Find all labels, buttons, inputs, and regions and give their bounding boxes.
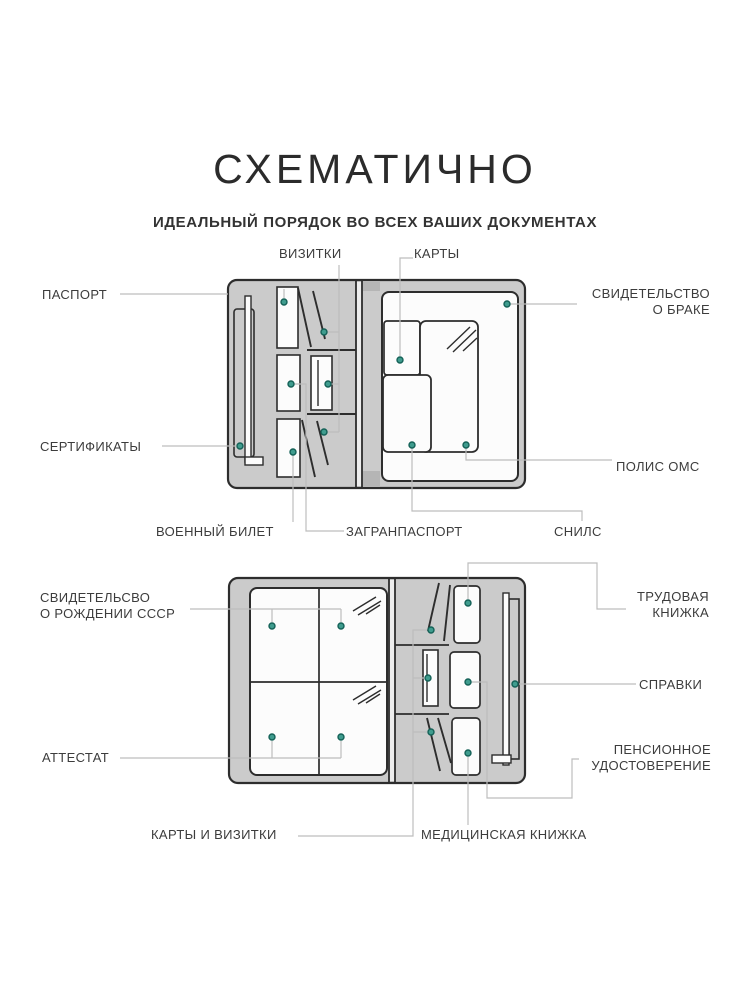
label-oms-policy: ПОЛИС ОМС [616, 459, 700, 475]
marker-certificates [237, 443, 243, 449]
label-birth-line1: СВИДЕТЕЛЬСВО [40, 590, 175, 606]
label-medical-book: МЕДИЦИНСКАЯ КНИЖКА [421, 827, 586, 843]
marker-pension [465, 679, 471, 685]
label-cards: КАРТЫ [414, 246, 460, 262]
marker-business-cards-3 [321, 429, 327, 435]
label-certificates: СЕРТИФИКАТЫ [40, 439, 141, 455]
top-pocket-cards [384, 321, 420, 375]
label-work-book-line2: КНИЖКА [554, 605, 709, 621]
marker-medical-book [465, 750, 471, 756]
label-birth-certificate: СВИДЕТЕЛЬСВО О РОЖДЕНИИ СССР [40, 590, 175, 622]
label-foreign-passport: ЗАГРАНПАСПОРТ [346, 524, 463, 540]
marker-oms-policy [463, 442, 469, 448]
label-pension-line1: ПЕНСИОННОЕ [556, 742, 711, 758]
label-marriage-line2: О БРАКЕ [555, 302, 710, 318]
label-marriage-line1: СВИДЕТЕЛЬСТВО [555, 286, 710, 302]
label-marriage-certificate: СВИДЕТЕЛЬСТВО О БРАКЕ [555, 286, 710, 318]
label-passport: ПАСПОРТ [42, 287, 107, 303]
organizer-diagram [0, 0, 750, 1000]
label-military-id: ВОЕННЫЙ БИЛЕТ [156, 524, 274, 540]
infographic-page: СХЕМАТИЧНО ИДЕАЛЬНЫЙ ПОРЯДОК ВО ВСЕХ ВАШ… [0, 0, 750, 1000]
top-spine-shade-b [363, 471, 380, 486]
marker-business-cards-2 [325, 381, 331, 387]
label-cards-business-cards: КАРТЫ И ВИЗИТКИ [151, 827, 277, 843]
marker-marriage [504, 301, 510, 307]
marker-foreign-passport [288, 381, 294, 387]
top-pocket-snils [383, 375, 431, 452]
marker-snils [409, 442, 415, 448]
organizer-top [228, 280, 525, 488]
marker-birth-cert-2 [338, 623, 344, 629]
top-pen-base [245, 457, 263, 465]
marker-cards-bc-2 [425, 675, 431, 681]
marker-cards-bc-3 [428, 729, 434, 735]
label-spravki: СПРАВКИ [639, 677, 702, 693]
bottom-pocket-medical [452, 718, 480, 775]
marker-attestat-1 [269, 734, 275, 740]
top-slot-passport [277, 287, 298, 348]
label-work-book: ТРУДОВАЯ КНИЖКА [554, 589, 709, 621]
marker-military-id [290, 449, 296, 455]
top-slot-military-id [277, 419, 300, 477]
label-pension-line2: УДОСТОВЕРЕНИЕ [556, 758, 711, 774]
bottom-pen-base [492, 755, 511, 763]
top-pen-strip [245, 296, 251, 462]
marker-attestat-2 [338, 734, 344, 740]
bottom-pocket-work-book [454, 586, 480, 643]
marker-work-book [465, 600, 471, 606]
marker-business-cards-1 [321, 329, 327, 335]
marker-birth-cert-1 [269, 623, 275, 629]
marker-cards [397, 357, 403, 363]
bottom-pen-strip [503, 593, 509, 765]
label-work-book-line1: ТРУДОВАЯ [554, 589, 709, 605]
label-attestat: АТТЕСТАТ [42, 750, 109, 766]
top-spine-shade-a [363, 282, 380, 291]
label-birth-line2: О РОЖДЕНИИ СССР [40, 606, 175, 622]
marker-spravki [512, 681, 518, 687]
marker-passport [281, 299, 287, 305]
marker-cards-bc-1 [428, 627, 434, 633]
label-pension: ПЕНСИОННОЕ УДОСТОВЕРЕНИЕ [556, 742, 711, 774]
label-snils: СНИЛС [554, 524, 602, 540]
label-business-cards: ВИЗИТКИ [279, 246, 342, 262]
